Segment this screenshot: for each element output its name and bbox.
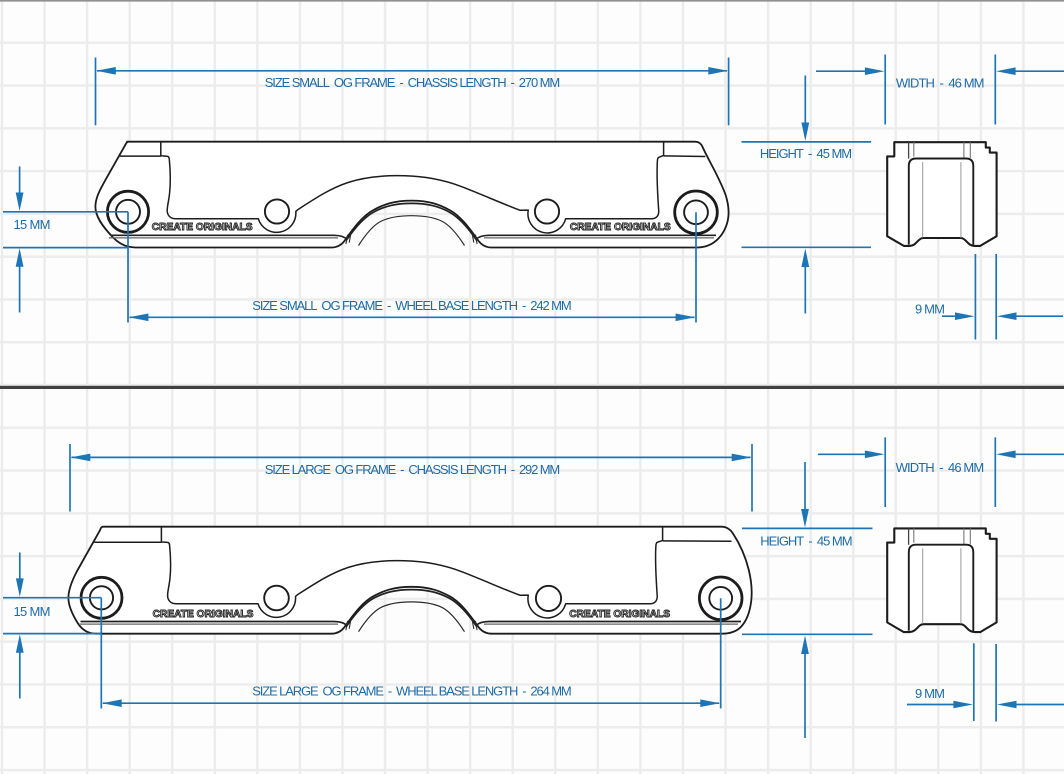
svg-text:SIZE SMALL OG FRAME - WHEEL: SIZE SMALL OG FRAME - WHEEL BASE LENGTH … (252, 298, 572, 313)
svg-text:WIDTH - 46 MM: WIDTH - 46 MM (896, 75, 985, 90)
svg-text:CREATE ORIGINALS: CREATE ORIGINALS (153, 609, 254, 620)
svg-text:9 MM: 9 MM (915, 686, 945, 701)
svg-text:SIZE SMALL OG FRAME - CHASS: SIZE SMALL OG FRAME - CHASSIS LENGTH - 2… (265, 75, 561, 90)
svg-text:CREATE ORIGINALS: CREATE ORIGINALS (570, 222, 671, 233)
svg-text:CREATE ORIGINALS: CREATE ORIGINALS (152, 222, 253, 233)
svg-text:9 MM: 9 MM (915, 301, 945, 316)
svg-text:15 MM: 15 MM (14, 604, 51, 619)
svg-text:SIZE LARGE OG FRAME - CHASS: SIZE LARGE OG FRAME - CHASSIS LENGTH - 2… (265, 462, 561, 477)
svg-text:CREATE ORIGINALS: CREATE ORIGINALS (569, 609, 670, 620)
svg-text:SIZE LARGE OG FRAME - WHEEL: SIZE LARGE OG FRAME - WHEEL BASE LENGTH … (252, 684, 572, 699)
svg-text:WIDTH - 46 MM: WIDTH - 46 MM (896, 460, 985, 475)
svg-text:HEIGHT - 45 MM: HEIGHT - 45 MM (760, 534, 852, 549)
svg-text:15 MM: 15 MM (14, 217, 51, 232)
svg-text:HEIGHT - 45 MM: HEIGHT - 45 MM (760, 146, 852, 161)
